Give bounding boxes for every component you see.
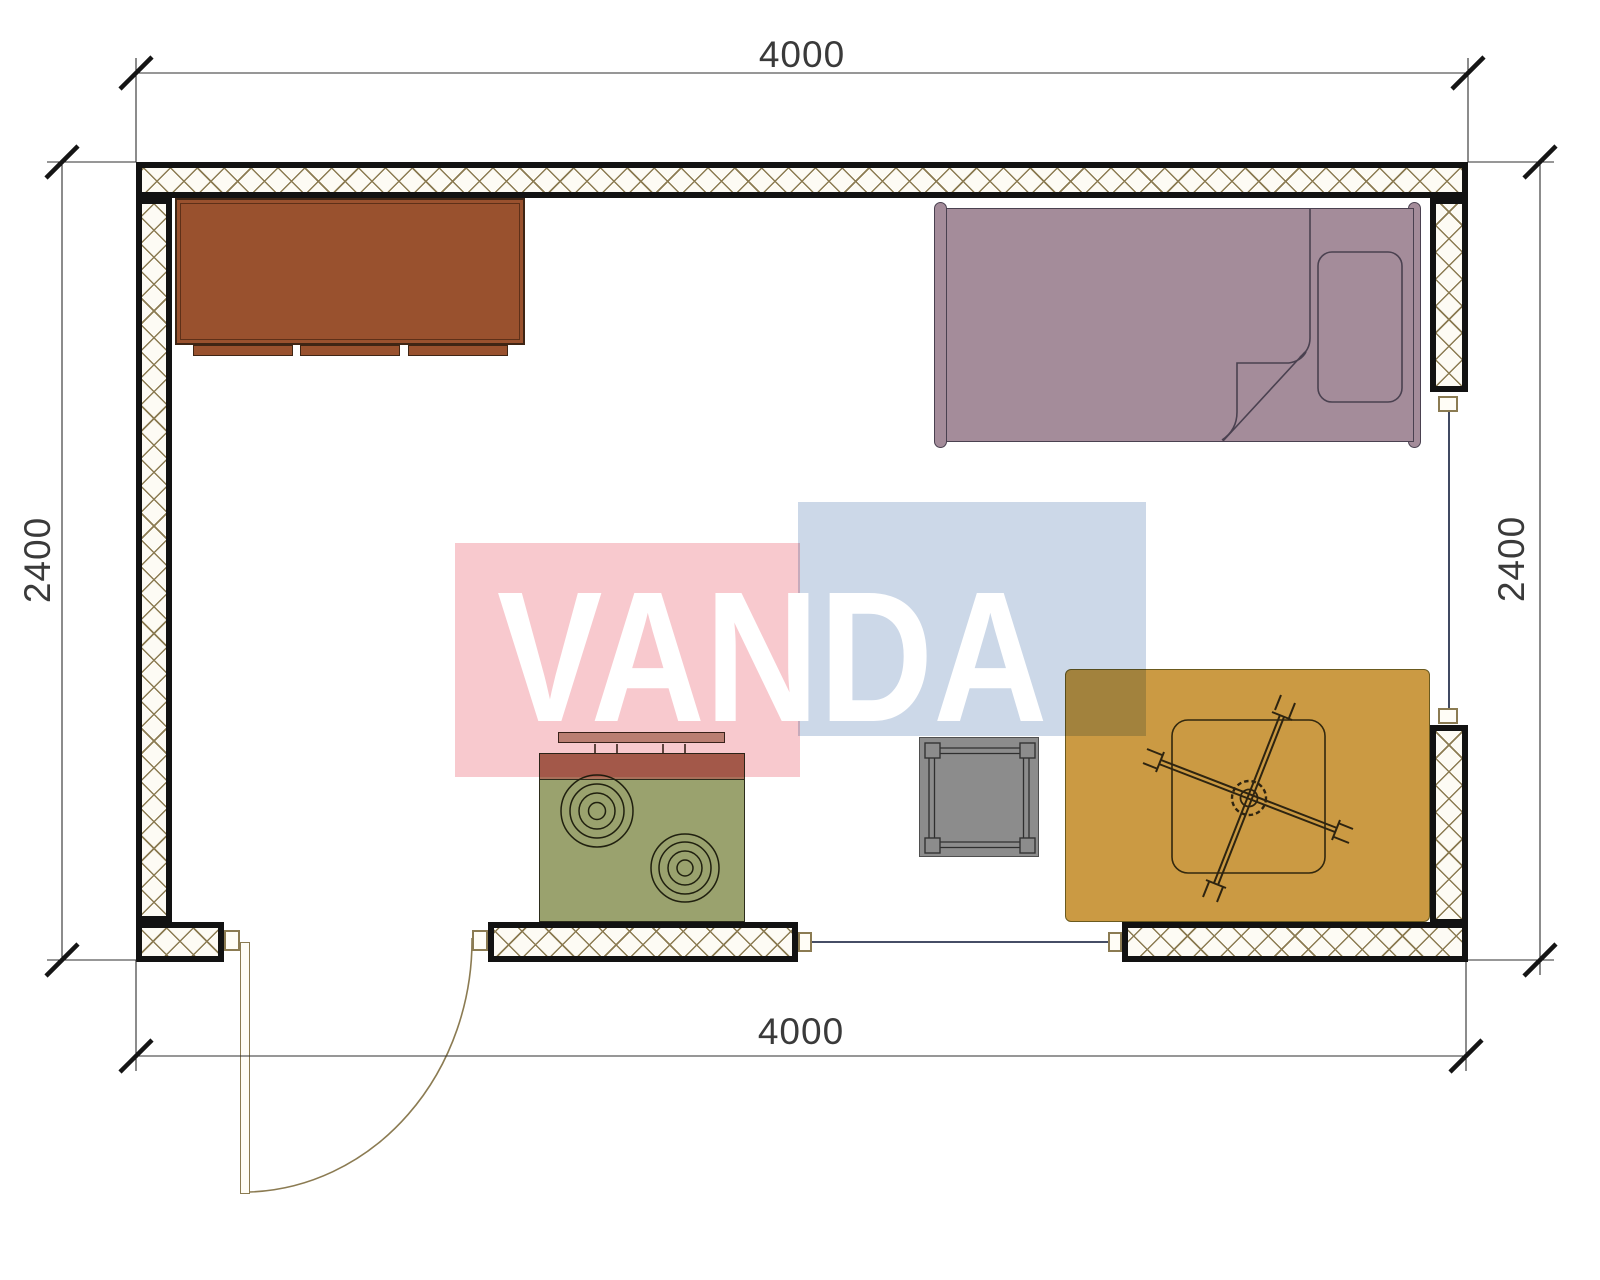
door-swing-arc: [250, 938, 472, 1192]
wardrobe-foot-left: [193, 345, 293, 356]
window-right-jamb-bottom: [1438, 708, 1458, 724]
stove[interactable]: [539, 753, 745, 922]
wall-top: [136, 162, 1468, 198]
dim-label-left: 2400: [17, 517, 58, 603]
wall-bottom-middle: [488, 922, 798, 962]
wall-left-return: [136, 922, 224, 962]
window-bottom-jamb-left: [798, 932, 812, 952]
door-jamb-left: [224, 930, 240, 951]
floor-plan-canvas: 4000 4000 2400 2400 VANDA: [0, 0, 1600, 1280]
wardrobe-foot-right: [408, 345, 508, 356]
wall-right-lower: [1430, 725, 1468, 925]
window-right-jamb-top: [1438, 396, 1458, 412]
wall-bottom-right: [1122, 922, 1468, 962]
bed[interactable]: [946, 208, 1414, 442]
door-jamb-right: [472, 930, 488, 951]
window-bottom-jamb-right: [1108, 932, 1122, 952]
wardrobe-inner-line: [180, 203, 520, 340]
door-leaf[interactable]: [240, 942, 250, 1194]
dim-label-top: 4000: [759, 34, 845, 75]
watermark-text: VANDA: [497, 565, 1047, 751]
wall-right-upper: [1430, 198, 1468, 392]
dim-label-right: 2400: [1491, 516, 1532, 602]
wardrobe-foot-middle: [300, 345, 400, 356]
wardrobe[interactable]: [175, 198, 525, 345]
wall-left: [136, 198, 172, 922]
dim-label-bottom: 4000: [758, 1011, 844, 1052]
